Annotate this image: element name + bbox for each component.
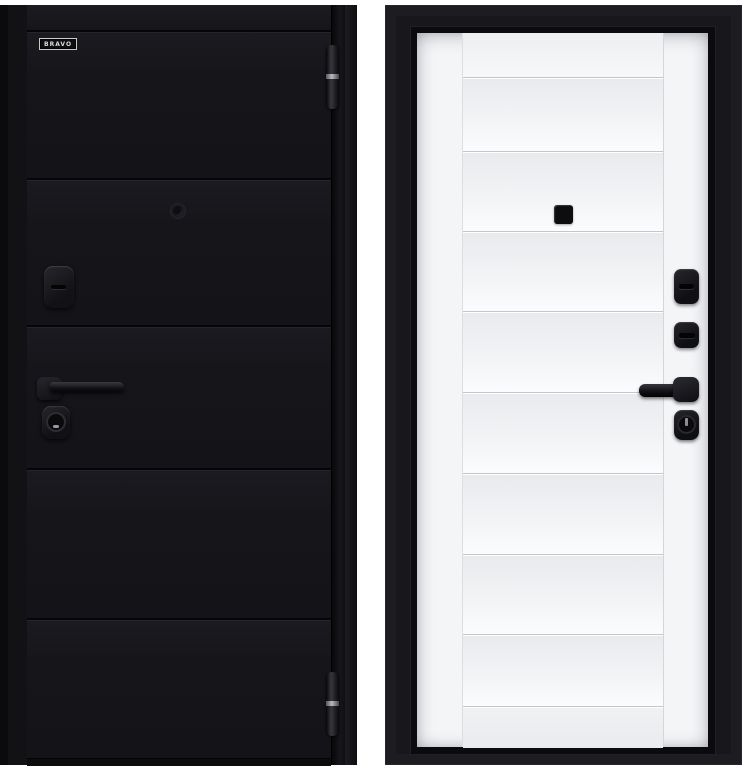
door-panel [27, 325, 331, 468]
night-latch-icon [674, 322, 699, 348]
door-panel [463, 473, 663, 554]
bottom-hinge-icon [326, 672, 339, 736]
door-panel [463, 311, 663, 392]
door-panel [463, 77, 663, 151]
door-panel-column [462, 33, 664, 747]
door-panel [27, 468, 331, 618]
black-door-left-edge [8, 5, 28, 765]
lever-handle-icon [50, 382, 124, 392]
key-cylinder-icon [674, 410, 699, 440]
black-door-hinge-edge [331, 5, 346, 765]
door-panel [463, 231, 663, 311]
door-bottom-edge [27, 758, 331, 766]
door-panel [463, 554, 663, 634]
keyway [685, 418, 688, 426]
door-panel [27, 618, 331, 758]
brand-badge: BRAVO [39, 38, 77, 50]
door-panel [27, 30, 331, 178]
latch-slot [679, 333, 695, 338]
black-door-left-shadow-edge [0, 5, 8, 765]
door-panel [463, 634, 663, 706]
cylinder-face [46, 412, 66, 432]
door-top-rail [27, 5, 331, 30]
white-door-face [417, 33, 708, 747]
night-latch-icon [44, 266, 74, 308]
latch-slot [51, 285, 66, 289]
black-door-photo: BRAVO [0, 5, 357, 765]
peephole-icon [171, 204, 185, 218]
black-door-right-shadow-edge [345, 5, 357, 765]
door-bottom-rail [463, 706, 663, 748]
peephole-icon [554, 205, 573, 224]
keyway [53, 425, 59, 428]
deadbolt-thumbturn-icon [674, 269, 699, 304]
door-panel [463, 392, 663, 473]
top-hinge-icon [326, 45, 339, 109]
thumbturn-wing [679, 284, 694, 289]
door-top-rail [463, 33, 663, 77]
handle-rosette [673, 377, 699, 402]
key-cylinder-icon [42, 406, 70, 439]
white-door-photo [385, 5, 742, 765]
